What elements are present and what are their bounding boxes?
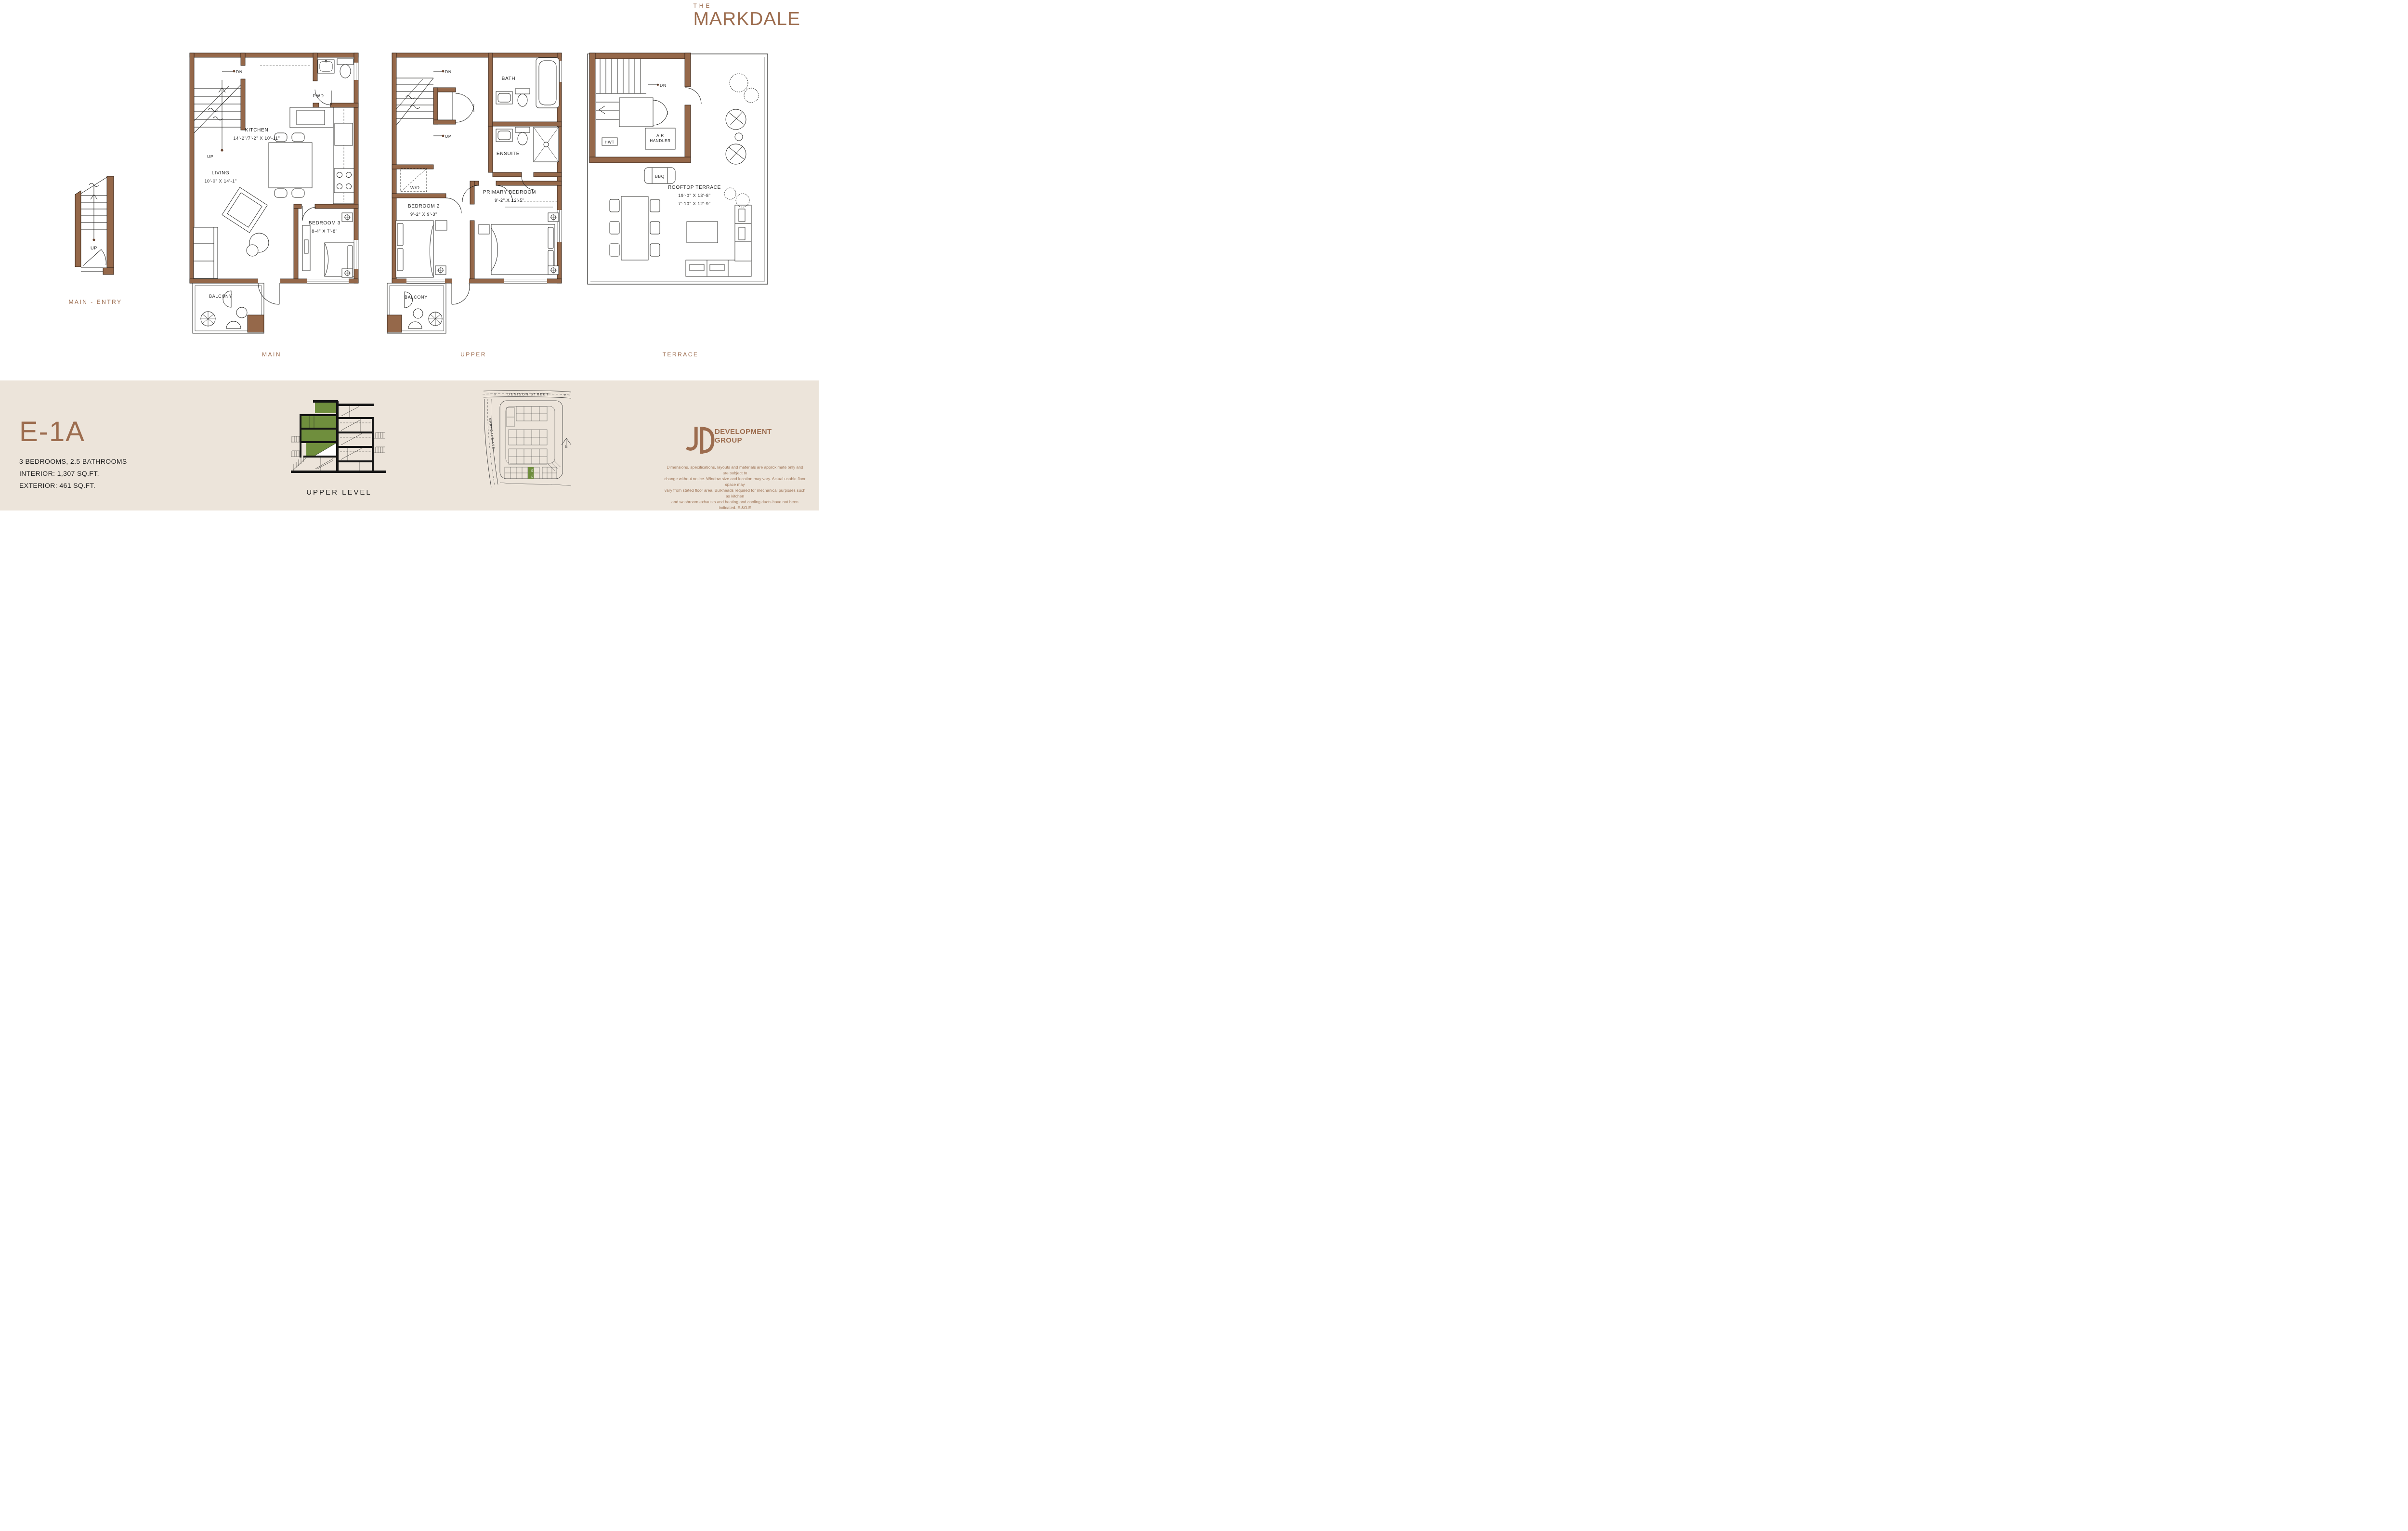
- disclaimer-line: vary from stated floor area. Bulkheads r…: [664, 487, 806, 499]
- caption-upper: UPPER: [440, 351, 507, 358]
- chair: [226, 321, 241, 328]
- unit-specs: 3 BEDROOMS, 2.5 BATHROOMS INTERIOR: 1,30…: [19, 456, 127, 492]
- marydale-ave-label: MARYDALE AVE: [488, 418, 495, 450]
- kitchen-label: KITCHEN: [245, 128, 269, 133]
- table: [236, 307, 247, 318]
- balcony: [193, 283, 279, 333]
- kitchen-dims: 14'-2"/7'-2" X 10'-11": [233, 136, 280, 141]
- brand-the: THE: [693, 3, 800, 9]
- up-label: UP: [207, 154, 213, 159]
- bedroom2-label: BEDROOM 2: [408, 204, 440, 209]
- denison-street-label: DENISON STREET: [508, 393, 550, 396]
- bedroom3-dims: 8-4" X 7'-8": [312, 229, 338, 234]
- spec-exterior: EXTERIOR: 461 SQ.FT.: [19, 480, 127, 492]
- living-dims: 10'-0" X 14'-1": [204, 179, 236, 183]
- unit-415-label: 415: [531, 469, 534, 472]
- dining-set: [610, 196, 660, 260]
- building-section: [287, 396, 391, 484]
- plan-main-entry: UP: [73, 172, 118, 282]
- spec-interior: INTERIOR: 1,307 SQ.FT.: [19, 468, 127, 480]
- brand-name: MARKDALE: [693, 9, 800, 29]
- bedroom3-label: BEDROOM 3: [309, 221, 340, 226]
- chair: [408, 322, 422, 328]
- developer-line2: GROUP: [715, 436, 772, 445]
- caption-terrace: TERRACE: [647, 351, 714, 358]
- primary-label: PRIMARY BEDROOM: [483, 190, 536, 195]
- rooftop-dims2: 7'-10" X 12'-9": [678, 201, 710, 206]
- planters: [724, 74, 759, 207]
- dn-label: DN: [236, 69, 243, 74]
- air-handler-label-2: HANDLER: [650, 139, 670, 143]
- bedroom2-dims: 9'-2" X 9'-3": [410, 212, 437, 217]
- air-handler-label-1: AIR: [656, 133, 664, 138]
- main-entry-drawing: UP: [73, 172, 118, 279]
- lounge-set: [686, 205, 751, 276]
- disclaimer-line: Dimensions, specifications, layouts and …: [664, 464, 806, 476]
- caption-main: MAIN: [238, 351, 305, 358]
- dn-label: DN: [445, 69, 452, 74]
- north-label: N: [565, 445, 567, 449]
- living-label: LIVING: [212, 170, 230, 176]
- terrace-drawing: DN HWT AIR HANDLER BBQ ROOFTOP TERRACE 1…: [586, 52, 770, 289]
- disclaimer-line: change without notice. Window size and l…: [664, 476, 806, 487]
- unit-code: E-1A: [19, 418, 85, 446]
- bath-label: BATH: [502, 76, 516, 81]
- main-drawing: DN UP PWD: [187, 51, 361, 340]
- chair: [405, 292, 413, 308]
- plan-main: DN UP PWD: [187, 51, 361, 342]
- disclaimer-line: and washroom exhausts and heating and co…: [664, 499, 806, 510]
- entry-door: [81, 249, 106, 272]
- caption-main-entry: MAIN - ENTRY: [62, 299, 129, 305]
- plan-upper: DN UP BATH ENSUITE: [384, 51, 567, 350]
- street-arrow-icon: »: [563, 394, 566, 397]
- bbq-label: BBQ: [655, 174, 665, 179]
- disclaimer: Dimensions, specifications, layouts and …: [664, 464, 806, 510]
- developer-name: DEVELOPMENT GROUP: [715, 428, 772, 445]
- table: [413, 309, 423, 318]
- balcony-label: BALCONY: [405, 295, 428, 300]
- site-map-drawing: DENISON STREET » » MARYDALE AVE: [482, 388, 573, 488]
- plan-terrace: DN HWT AIR HANDLER BBQ ROOFTOP TERRACE 1…: [586, 52, 770, 291]
- bedroom2: [396, 221, 447, 277]
- pwd-label: PWD: [313, 93, 324, 98]
- developer-line1: DEVELOPMENT: [715, 428, 772, 436]
- floorplan-flyer: THE MARKDALE UP: [0, 0, 819, 510]
- dn-label: DN: [660, 83, 667, 88]
- plant-icon: [428, 312, 443, 326]
- rooftop-label: ROOFTOP TERRACE: [668, 185, 721, 190]
- wall: [103, 268, 114, 275]
- section-drawing: [287, 396, 391, 482]
- hwt-label: HWT: [605, 140, 615, 144]
- island-table: [269, 133, 312, 197]
- wall: [75, 191, 81, 267]
- primary-bedroom: [479, 201, 559, 275]
- street-arrow-icon: »: [494, 393, 497, 396]
- unit-418-label: 418: [531, 474, 534, 478]
- brand-logo: THE MARKDALE: [693, 3, 800, 29]
- upper-drawing: DN UP BATH ENSUITE: [384, 51, 567, 347]
- balcony: [387, 283, 470, 333]
- stairs: [81, 177, 107, 241]
- living-furniture: [194, 187, 310, 278]
- wd-label: W/D: [410, 185, 420, 190]
- site-map: DENISON STREET » » MARYDALE AVE: [482, 388, 573, 491]
- plant-icon: [200, 311, 216, 327]
- wall: [107, 176, 114, 268]
- primary-dims: 9'-2" X 12'-5": [495, 198, 524, 203]
- ensuite: [496, 127, 559, 190]
- rooftop-dims1: 19'-0" X 13'-8": [678, 193, 710, 198]
- developer-logo: [686, 425, 714, 459]
- round-chairs: [726, 109, 746, 164]
- up-label: UP: [91, 246, 97, 250]
- jd-monogram-icon: [686, 425, 714, 457]
- ensuite-label: ENSUITE: [497, 151, 520, 157]
- balcony-label: BALCONY: [209, 294, 232, 299]
- caption-upper-level: UPPER LEVEL: [287, 488, 391, 497]
- up-label: UP: [445, 134, 451, 139]
- spec-bedrooms: 3 BEDROOMS, 2.5 BATHROOMS: [19, 456, 127, 468]
- bath: [496, 58, 559, 108]
